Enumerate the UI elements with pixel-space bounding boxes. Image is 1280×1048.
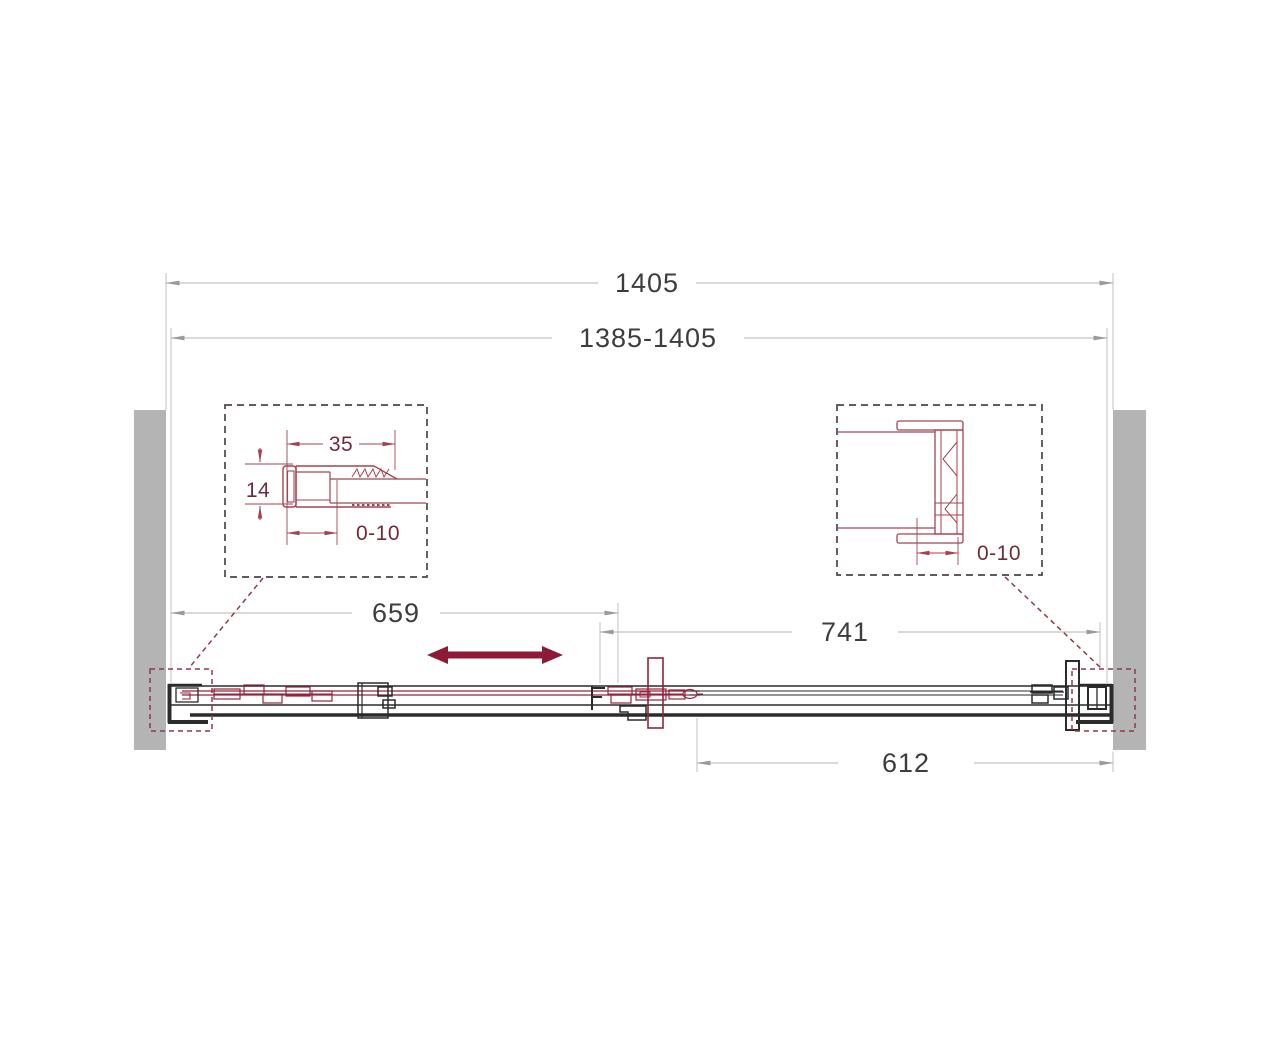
slide-direction-arrow	[427, 646, 563, 664]
dim-right-adjust-label: 0-10	[977, 542, 1021, 565]
dim-right-section-label: 741	[821, 617, 869, 647]
detail-right-dims: 0-10	[917, 518, 1021, 565]
callout-right-leader	[1005, 577, 1101, 668]
dim-fixed-glass-label: 612	[882, 748, 930, 778]
dim-fixed-glass: 612	[697, 718, 1113, 778]
profile-mid-left	[358, 683, 395, 718]
drawing-svg: 1405 1385-1405	[0, 0, 1280, 1048]
detail-box-left: 35 14 0-10	[225, 405, 427, 577]
dim-adjust-range: 1385-1405	[171, 323, 1107, 683]
wall-profile-right	[1076, 684, 1113, 723]
dim-sliding-panel-label: 659	[372, 598, 420, 628]
detail-right-profile	[838, 421, 963, 543]
detail-left-dims: 35 14 0-10	[245, 430, 400, 545]
wall-profile-left	[168, 684, 208, 723]
dim-right-section: 741	[600, 617, 1100, 683]
dim-overall-label: 1405	[615, 268, 679, 298]
wall-right	[1113, 410, 1146, 750]
fixed-glass-panel	[690, 691, 1063, 695]
dim-profile-depth-label: 14	[246, 479, 270, 502]
detail-box-right: 0-10	[837, 405, 1042, 575]
technical-drawing-canvas: 1405 1385-1405	[0, 0, 1280, 1048]
roller-cluster-left	[214, 685, 332, 703]
callout-left-leader	[189, 578, 263, 668]
dim-left-adjust-label: 0-10	[356, 522, 400, 545]
dim-profile-width-label: 35	[329, 433, 353, 456]
detail-left-profile	[283, 466, 426, 507]
hatch-zigzag	[352, 469, 389, 477]
callout-left	[150, 578, 263, 731]
step-profile	[620, 706, 646, 720]
hatch-chevron-lower	[945, 494, 957, 523]
dim-sliding-panel: 659	[171, 598, 618, 683]
door-assembly	[168, 658, 1113, 730]
dim-adjust-range-label: 1385-1405	[579, 323, 717, 353]
hatch-chevron-upper	[943, 442, 957, 476]
